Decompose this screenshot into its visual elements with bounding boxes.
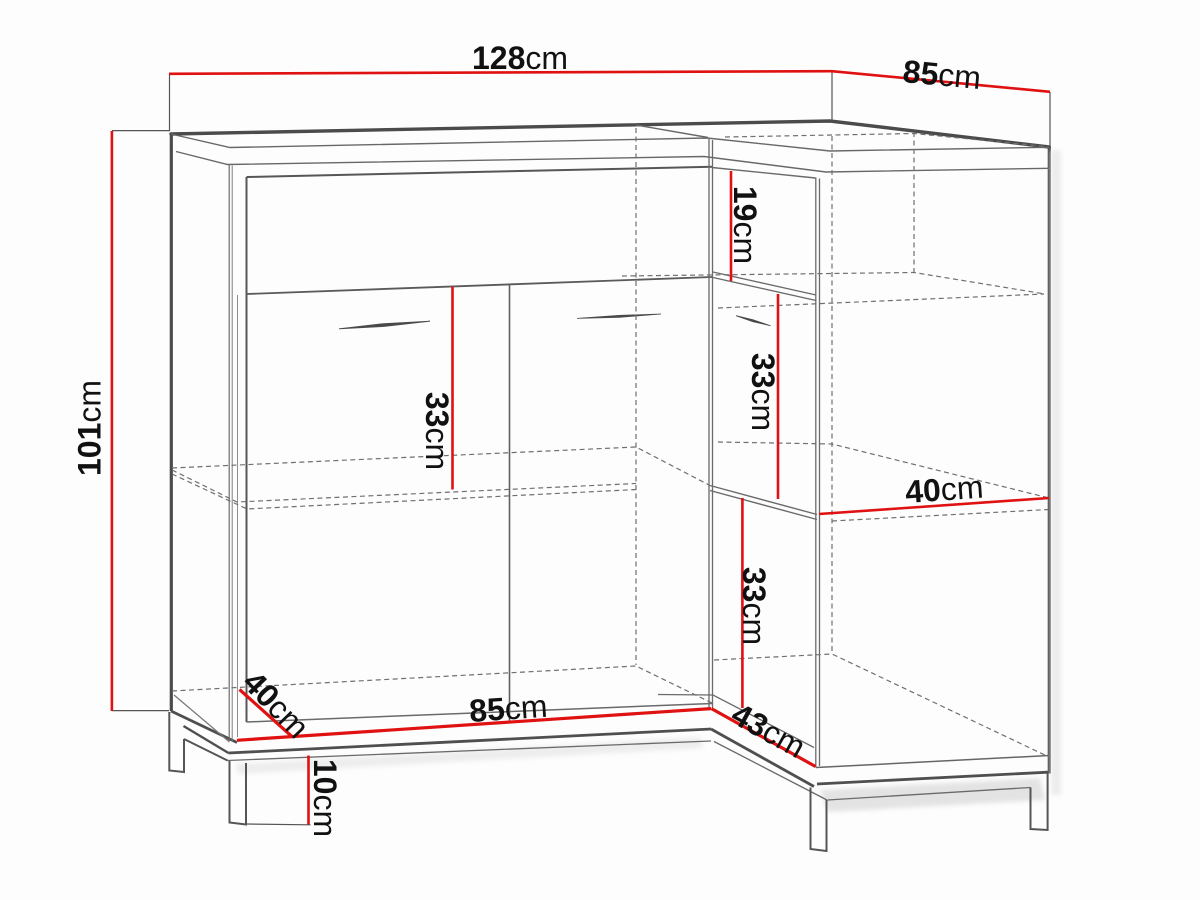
svg-text:85cm: 85cm [468,688,549,729]
svg-text:85cm: 85cm [901,53,982,96]
svg-text:101cm: 101cm [72,380,108,476]
svg-text:33cm: 33cm [745,353,781,431]
svg-text:10cm: 10cm [307,759,343,837]
svg-text:19cm: 19cm [727,186,763,264]
svg-text:33cm: 33cm [736,567,772,645]
svg-text:40cm: 40cm [904,469,985,510]
svg-text:128cm: 128cm [472,40,568,76]
svg-text:40cm: 40cm [236,664,316,745]
svg-text:33cm: 33cm [419,392,455,470]
